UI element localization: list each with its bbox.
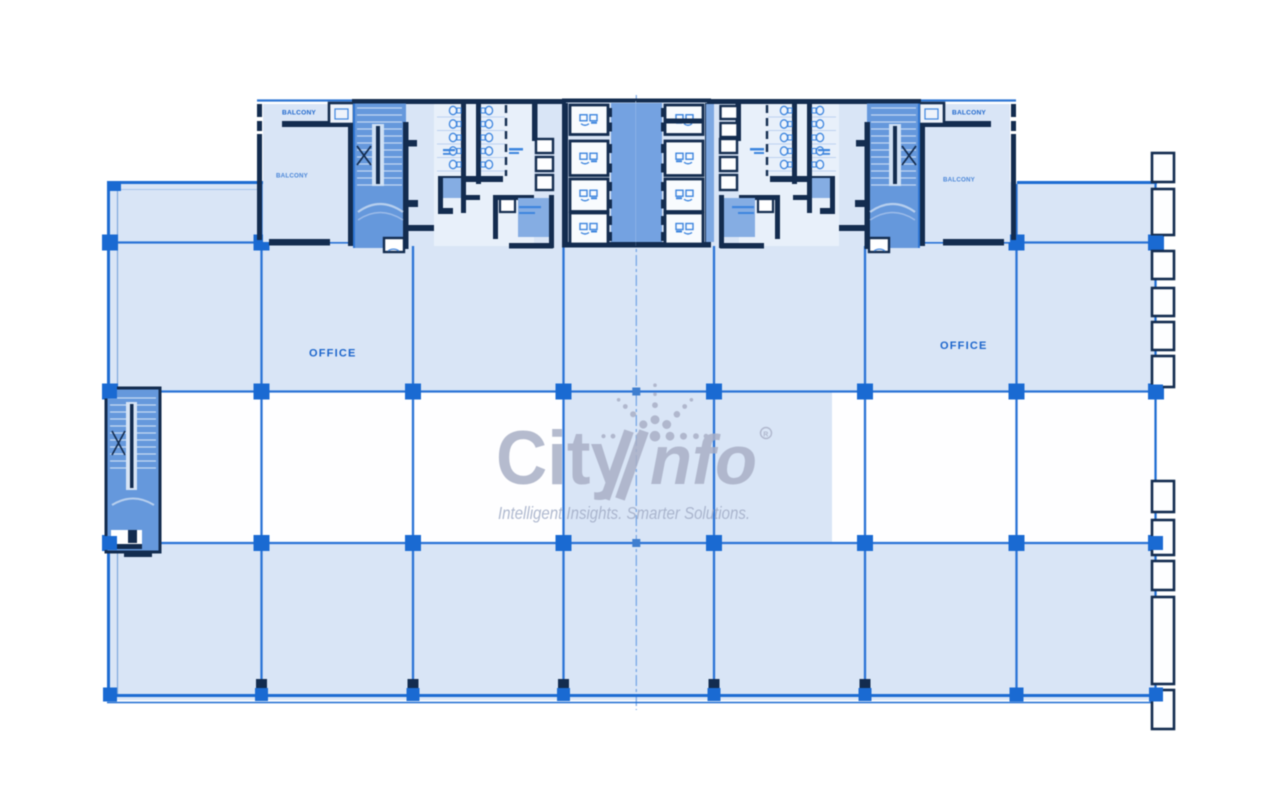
svg-text:OFFICE: OFFICE <box>309 348 357 360</box>
svg-text:BALCONY: BALCONY <box>943 177 976 184</box>
svg-text:nfo: nfo <box>650 421 757 499</box>
svg-text:R: R <box>763 432 768 439</box>
svg-text:BALCONY: BALCONY <box>952 110 986 117</box>
svg-text:OFFICE: OFFICE <box>940 340 988 352</box>
svg-text:BALCONY: BALCONY <box>276 173 309 180</box>
svg-text:Intelligent Insights. Smarter: Intelligent Insights. Smarter Solutions. <box>498 503 750 523</box>
svg-text:BALCONY: BALCONY <box>282 110 316 117</box>
